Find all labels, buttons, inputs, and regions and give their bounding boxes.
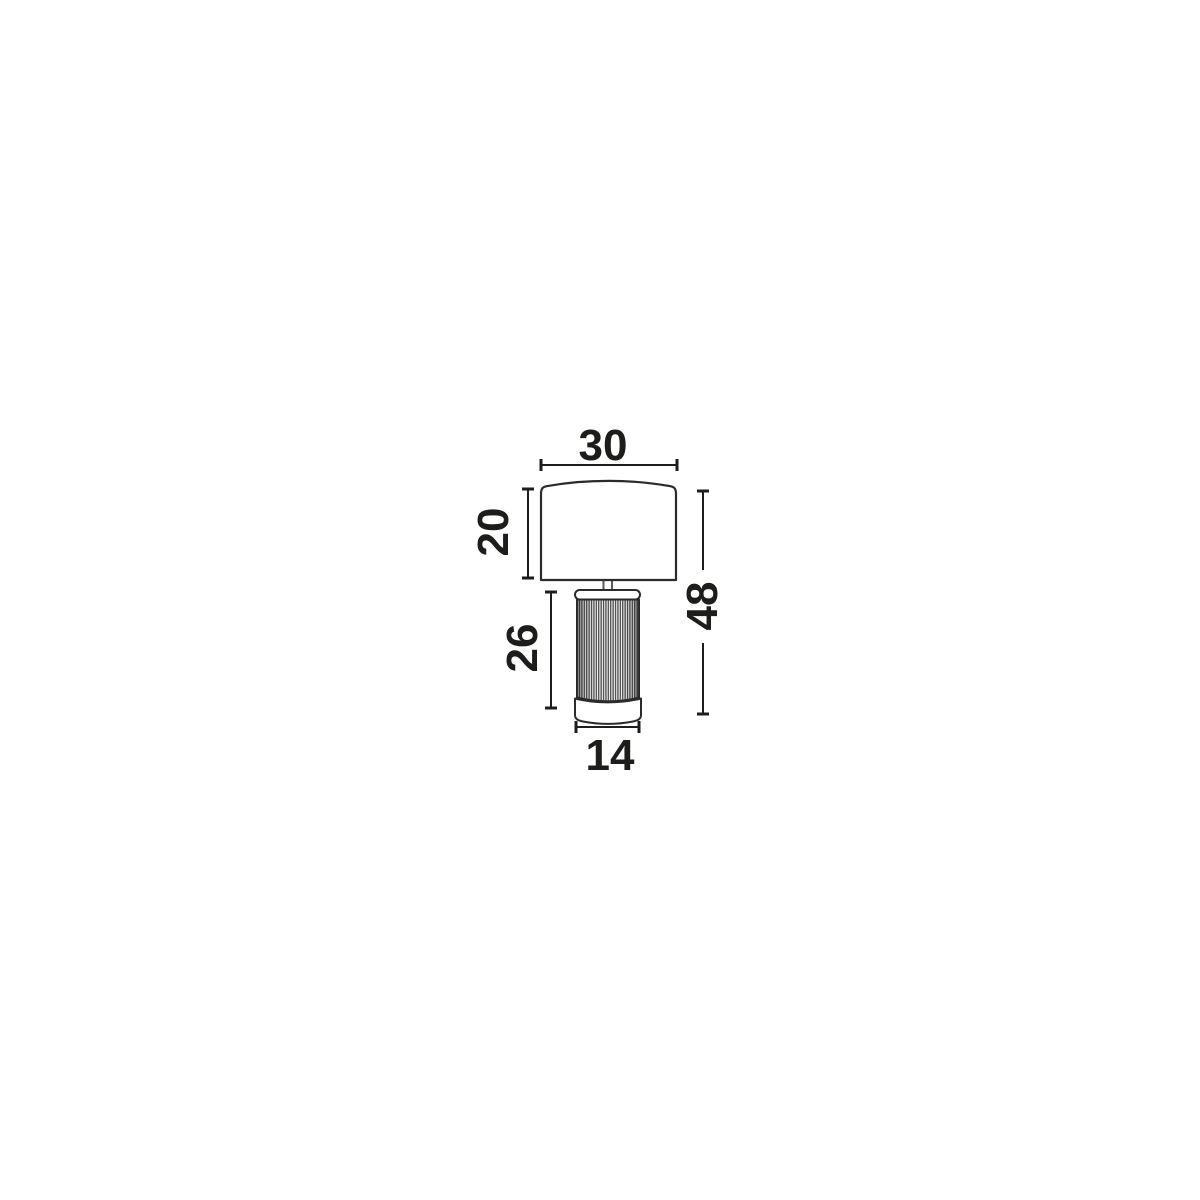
dim-label-shade-height: 20 xyxy=(472,508,516,557)
dim-label-total-height: 48 xyxy=(681,582,725,631)
lamp-shade xyxy=(541,481,676,580)
lamp-line-art xyxy=(0,0,1200,1200)
base-top-rim xyxy=(575,590,640,600)
drawing-canvas: 30 20 26 48 14 xyxy=(0,0,1200,1200)
dim-label-shade-width: 30 xyxy=(579,424,628,468)
dim-line-shade-height xyxy=(522,489,534,578)
base-fluted-body xyxy=(577,600,639,702)
base-plinth xyxy=(575,699,641,724)
dim-label-base-height: 26 xyxy=(501,624,545,673)
dim-label-base-width: 14 xyxy=(586,734,635,778)
